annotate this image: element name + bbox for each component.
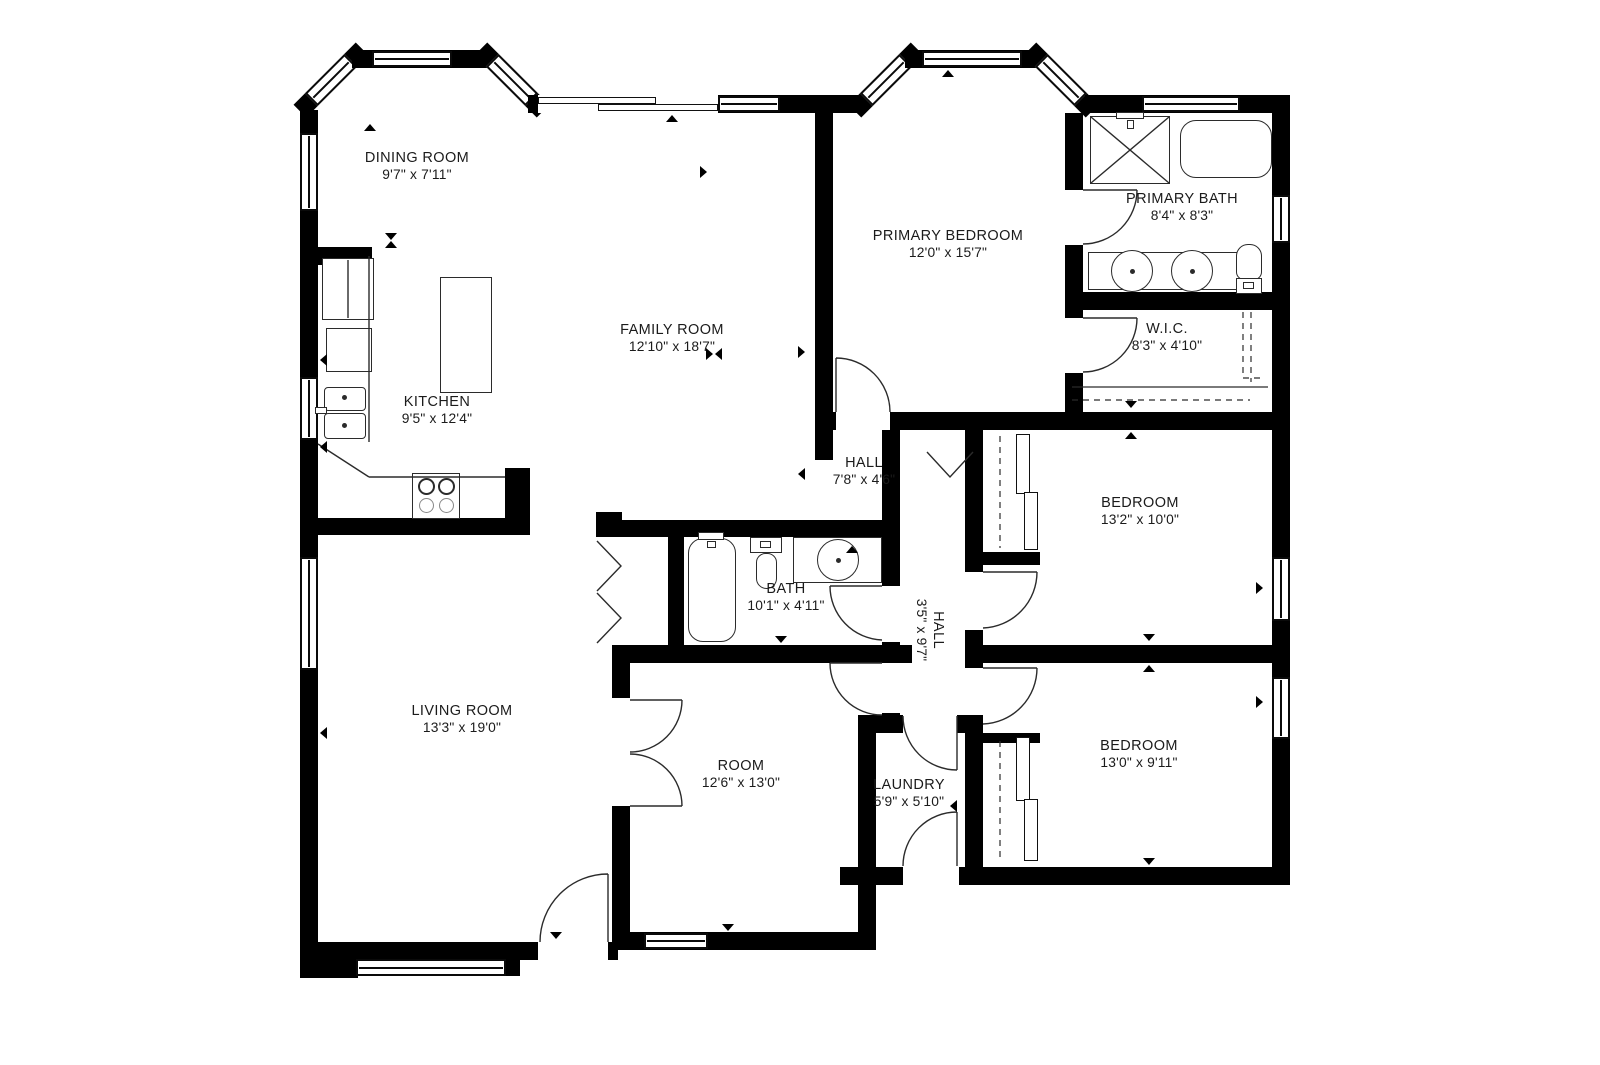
room-name: BATH [747,581,824,598]
room-dims: 13'0" x 9'11" [1100,755,1178,772]
vent-arrow [1256,696,1263,708]
room-dims: 12'10" x 18'7" [620,339,724,356]
door-swing [630,754,682,806]
vent-arrow [1143,858,1155,865]
door-swing [903,716,957,770]
room-name: LIVING ROOM [411,703,512,720]
vent-arrow [942,70,954,77]
vent-arrow [722,924,734,931]
room-dims: 8'4" x 8'3" [1126,208,1238,225]
room-dims: 12'6" x 13'0" [702,775,780,792]
room-dims: 7'8" x 4'6" [833,472,896,489]
vent-arrow [385,233,397,240]
room-name: ROOM [702,758,780,775]
door-swing [830,663,882,715]
room-name: LAUNDRY [873,777,945,794]
room-label-primary-bedroom: PRIMARY BEDROOM 12'0" x 15'7" [873,228,1024,262]
room-label-room: ROOM 12'6" x 13'0" [702,758,780,792]
counter-edge [318,256,505,477]
room-label-bedroom-se: BEDROOM 13'0" x 9'11" [1100,738,1178,772]
door-swing [830,586,882,640]
room-name: PRIMARY BATH [1126,191,1238,208]
room-dims: 12'0" x 15'7" [873,245,1024,262]
vent-arrow [846,546,858,553]
vent-arrow [798,468,805,480]
attic-access-marker [927,452,973,477]
room-name: DINING ROOM [365,150,469,167]
vent-arrow [364,124,376,131]
room-label-kitchen: KITCHEN 9'5" x 12'4" [402,394,472,428]
vent-arrow [1256,582,1263,594]
room-label-hall-vertical: HALL 3'5" x 9'7" [912,599,946,662]
room-label-primary-bath: PRIMARY BATH 8'4" x 8'3" [1126,191,1238,225]
room-name: HALL [929,599,946,662]
room-label-dining-room: DINING ROOM 9'7" x 7'11" [365,150,469,184]
floorplan-canvas: DINING ROOM 9'7" x 7'11" FAMILY ROOM 12'… [0,0,1600,1065]
door-swing [983,668,1037,724]
door-swing [903,812,957,866]
room-label-wic: W.I.C. 8'3" x 4'10" [1132,321,1202,355]
room-dims: 13'2" x 10'0" [1101,512,1179,529]
vent-arrow [1143,634,1155,641]
room-dims: 8'3" x 4'10" [1132,338,1202,355]
room-label-bedroom-ne: BEDROOM 13'2" x 10'0" [1101,495,1179,529]
vent-arrow [700,166,707,178]
room-name: W.I.C. [1132,321,1202,338]
closet-shelf-dashed [1243,312,1264,378]
room-name: FAMILY ROOM [620,322,724,339]
room-name: BEDROOM [1100,738,1178,755]
door-swing [836,358,890,412]
vent-arrow [320,354,327,366]
room-name: HALL [833,455,896,472]
room-dims: 9'5" x 12'4" [402,411,472,428]
details-layer [0,0,1600,1065]
vent-arrow [550,932,562,939]
room-dims: 9'7" x 7'11" [365,167,469,184]
vent-arrow [320,441,327,453]
room-dims: 10'1" x 4'11" [747,598,824,615]
vent-arrow [950,800,957,812]
room-name: PRIMARY BEDROOM [873,228,1024,245]
vent-arrow [860,800,867,812]
door-swing [1083,318,1137,372]
bifold-door [597,541,621,643]
room-dims: 5'9" x 5'10" [873,794,945,811]
vent-arrow [1180,294,1192,301]
room-label-living-room: LIVING ROOM 13'3" x 19'0" [411,703,512,737]
shower-glass-x [1091,117,1169,183]
vent-arrow [775,636,787,643]
room-label-laundry: LAUNDRY 5'9" x 5'10" [873,777,945,811]
vent-arrow [1125,401,1137,408]
vent-arrow [385,241,397,248]
room-dims: 13'3" x 19'0" [411,720,512,737]
vent-arrow [798,346,805,358]
room-label-bath: BATH 10'1" x 4'11" [747,581,824,615]
room-label-hall-upper: HALL 7'8" x 4'6" [833,455,896,489]
vent-arrow [320,727,327,739]
door-swing [630,700,682,752]
room-label-family-room: FAMILY ROOM 12'10" x 18'7" [620,322,724,356]
vent-arrow [1125,432,1137,439]
room-name: BEDROOM [1101,495,1179,512]
door-swing [983,572,1037,628]
room-dims: 3'5" x 9'7" [912,599,929,662]
vent-arrow [666,115,678,122]
room-name: KITCHEN [402,394,472,411]
vent-arrow [1143,665,1155,672]
